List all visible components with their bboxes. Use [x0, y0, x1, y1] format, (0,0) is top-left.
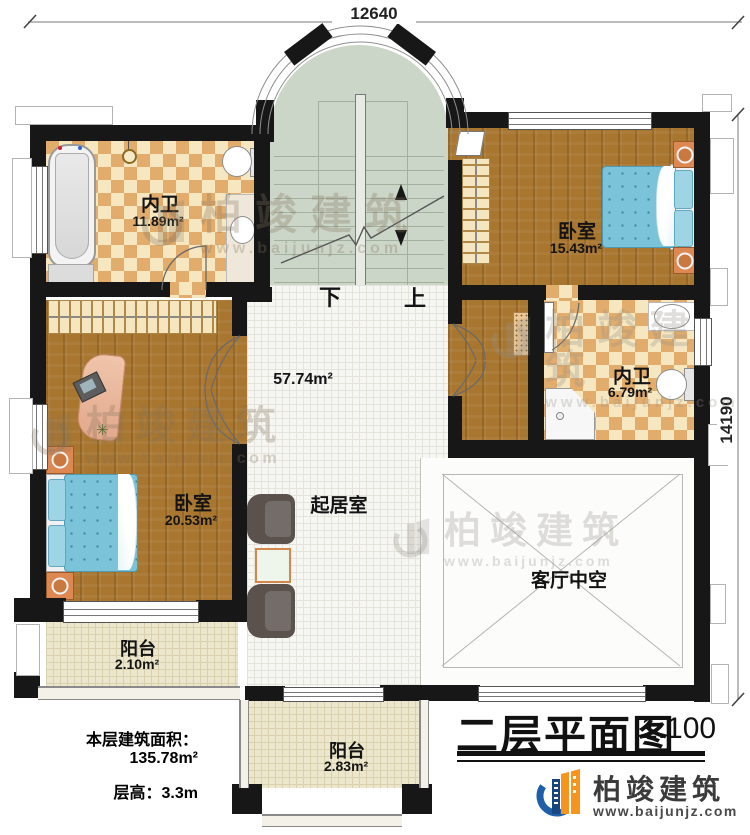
- plan-scale: 1:100: [641, 712, 716, 746]
- room-area-bedroom-right: 15.43m²: [550, 240, 602, 256]
- floor-area-line: 本层建筑面积：135.78m²: [36, 726, 198, 768]
- brand-name: 柏竣建筑: [593, 768, 725, 808]
- room-area-balcony-bottom: 2.83m²: [324, 758, 368, 774]
- room-area-bath-right: 6.79m²: [608, 384, 652, 400]
- room-area-balcony-left: 2.10m²: [115, 656, 159, 672]
- room-label-void: 客厅中空: [531, 566, 607, 593]
- floor-height-value: 3.3m: [162, 785, 198, 802]
- floor-height-line: 层高：3.3m: [36, 779, 198, 803]
- room-area-bedroom-left: 20.53m²: [165, 512, 217, 528]
- room-area-bath-top: 11.89m²: [132, 213, 183, 229]
- title-underline-thin: [457, 760, 705, 762]
- stair-up-label: 上: [404, 281, 426, 313]
- brand-url: www.baijunjz.com: [593, 803, 738, 819]
- floor-info: 本层建筑面积：135.78m² 层高：3.3m: [36, 726, 198, 803]
- floor-plan: ✳: [0, 0, 750, 835]
- room-area-living: 57.74m²: [273, 371, 333, 389]
- floor-area-value: 135.78m²: [130, 750, 199, 767]
- dimension-height: 14190: [717, 375, 737, 465]
- title-underline: [457, 751, 705, 756]
- room-label-living: 起居室: [310, 491, 367, 518]
- brand-logo-icon: [536, 766, 588, 820]
- dimension-width: 12640: [332, 4, 416, 24]
- floor-height-label: 层高：: [114, 785, 162, 802]
- floor-area-label: 本层建筑面积：: [86, 732, 198, 749]
- stair-down-label: 下: [319, 280, 341, 312]
